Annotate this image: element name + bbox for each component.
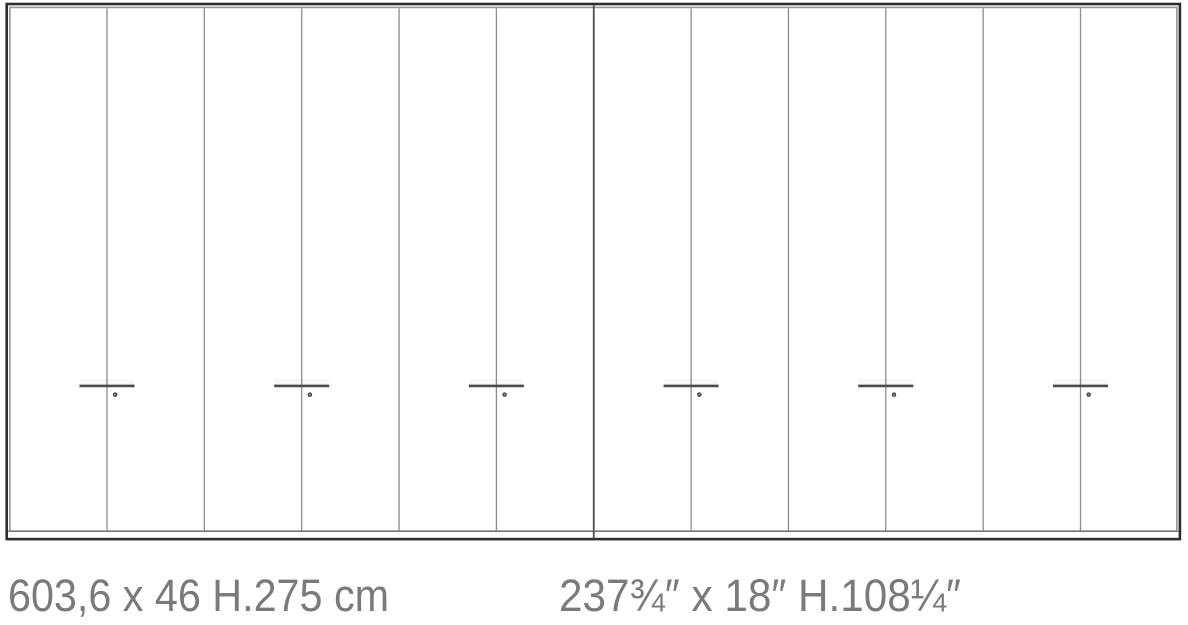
- svg-text:603,6 x 46 H.275 cm: 603,6 x 46 H.275 cm: [8, 570, 389, 621]
- svg-text:237¾″ x 18″ H.108¼″: 237¾″ x 18″ H.108¼″: [559, 570, 961, 621]
